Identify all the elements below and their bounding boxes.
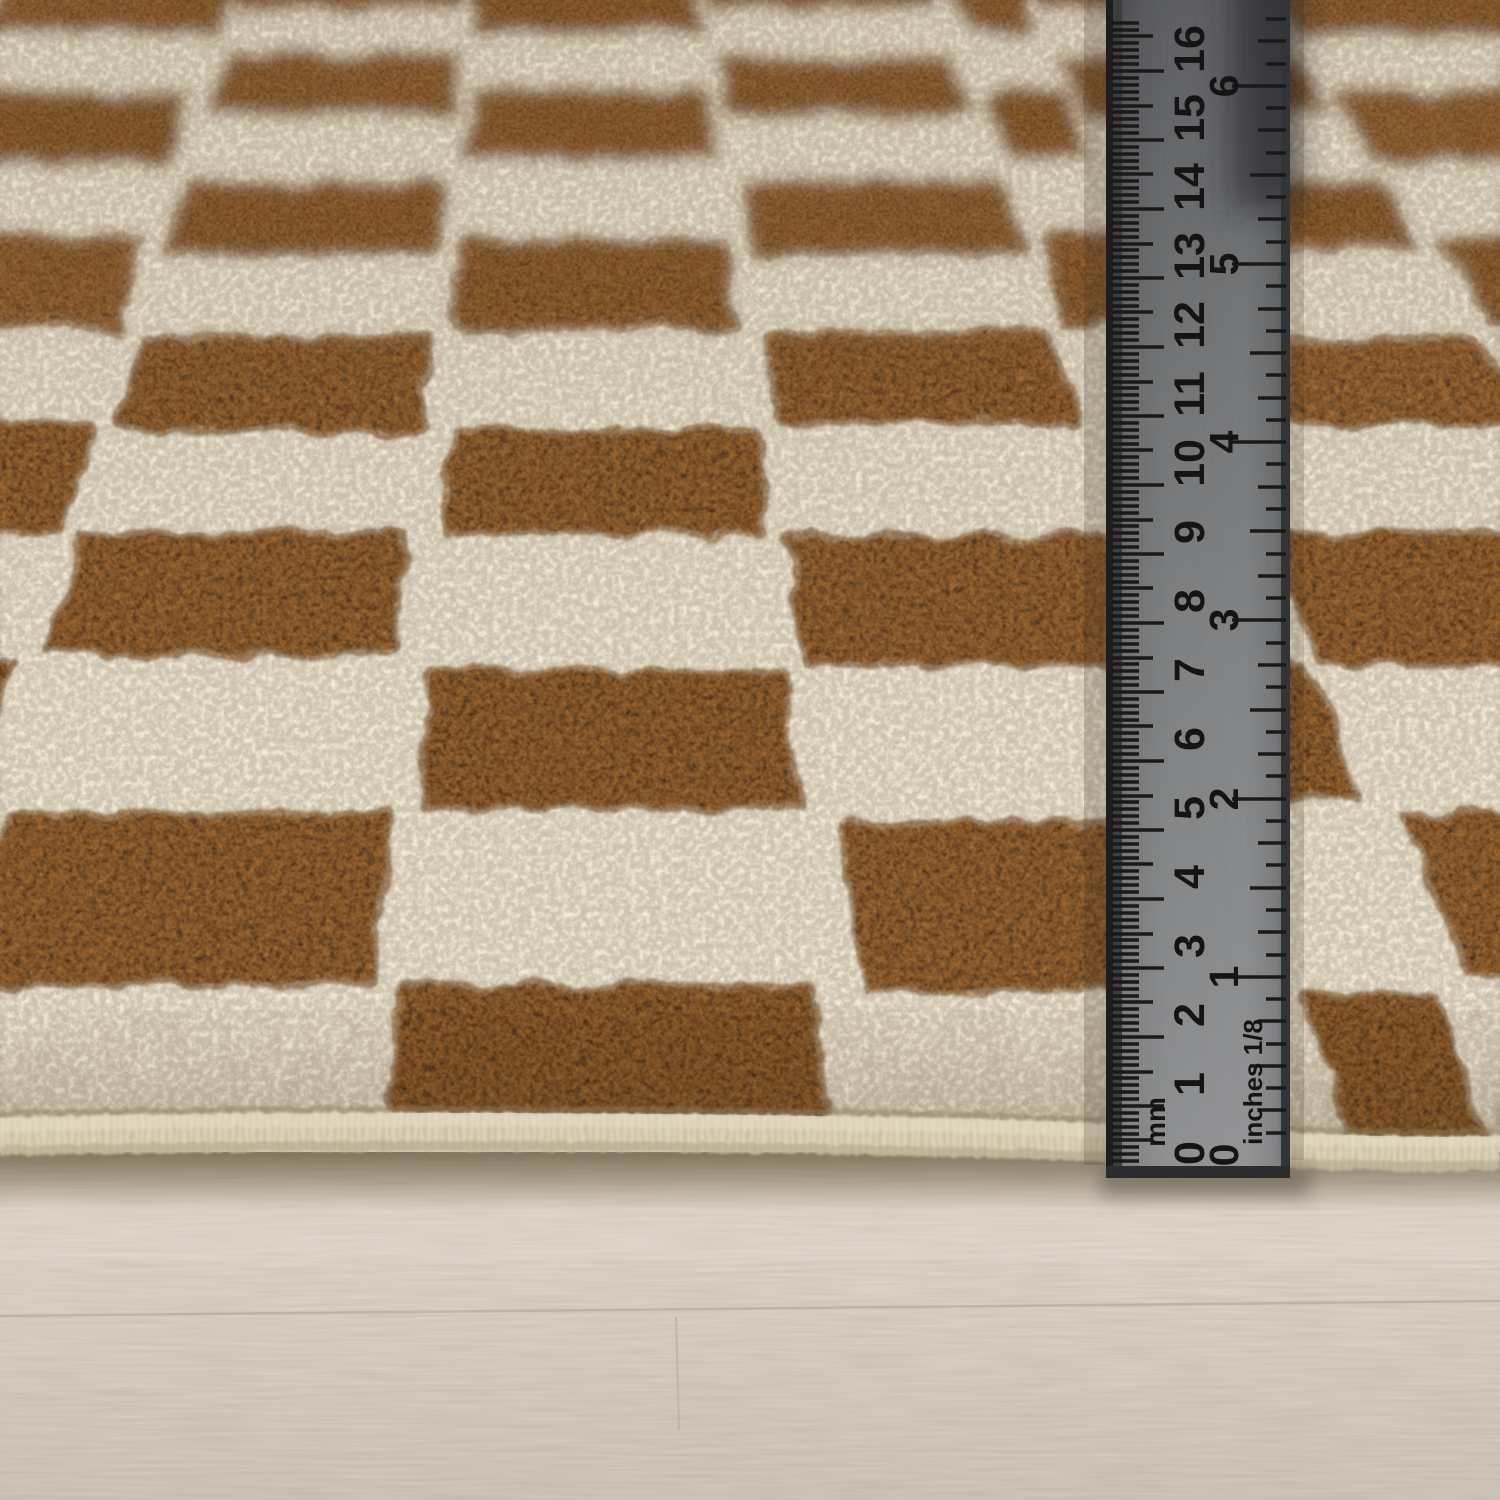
svg-text:6: 6 [1201, 75, 1247, 98]
svg-text:0: 0 [1201, 1144, 1247, 1167]
svg-text:mm: mm [1140, 1097, 1171, 1147]
svg-text:15: 15 [1166, 94, 1214, 142]
svg-text:3: 3 [1166, 934, 1214, 958]
svg-text:7: 7 [1166, 658, 1214, 682]
svg-text:2: 2 [1201, 788, 1247, 811]
svg-text:inches 1/8: inches 1/8 [1238, 1019, 1268, 1145]
svg-text:14: 14 [1166, 163, 1214, 211]
svg-text:4: 4 [1166, 865, 1214, 889]
svg-text:9: 9 [1166, 520, 1214, 544]
svg-text:3: 3 [1201, 609, 1247, 632]
svg-text:16: 16 [1166, 25, 1214, 73]
svg-text:5: 5 [1201, 253, 1247, 276]
svg-text:12: 12 [1166, 301, 1214, 349]
svg-text:11: 11 [1166, 371, 1214, 416]
svg-text:1: 1 [1166, 1072, 1214, 1096]
svg-text:6: 6 [1166, 727, 1214, 751]
svg-text:1: 1 [1201, 966, 1247, 989]
svg-text:2: 2 [1166, 1003, 1214, 1027]
svg-text:4: 4 [1201, 430, 1247, 453]
